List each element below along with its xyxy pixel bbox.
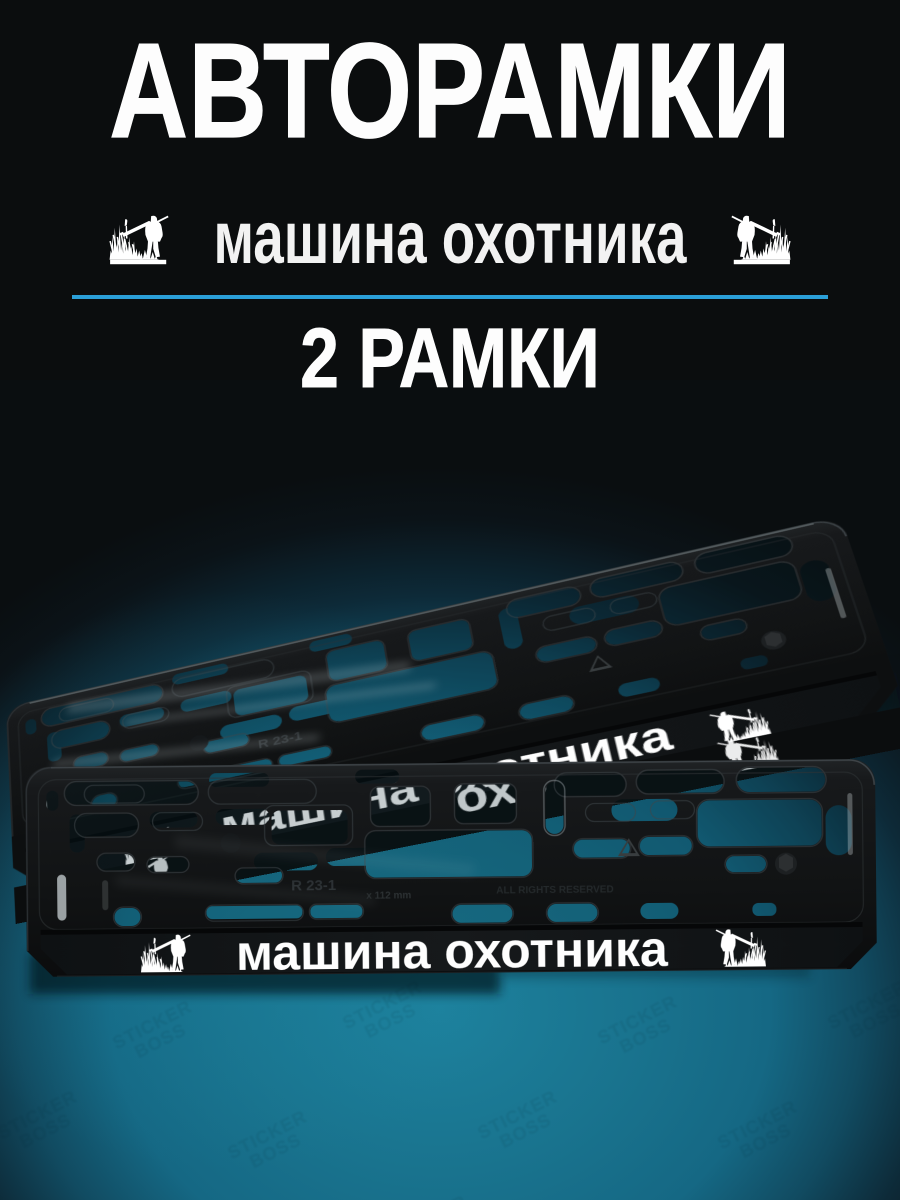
svg-text:ALL RIGHTS RESERVED: ALL RIGHTS RESERVED bbox=[496, 884, 614, 896]
svg-text:x 112 mm: x 112 mm bbox=[366, 890, 411, 901]
